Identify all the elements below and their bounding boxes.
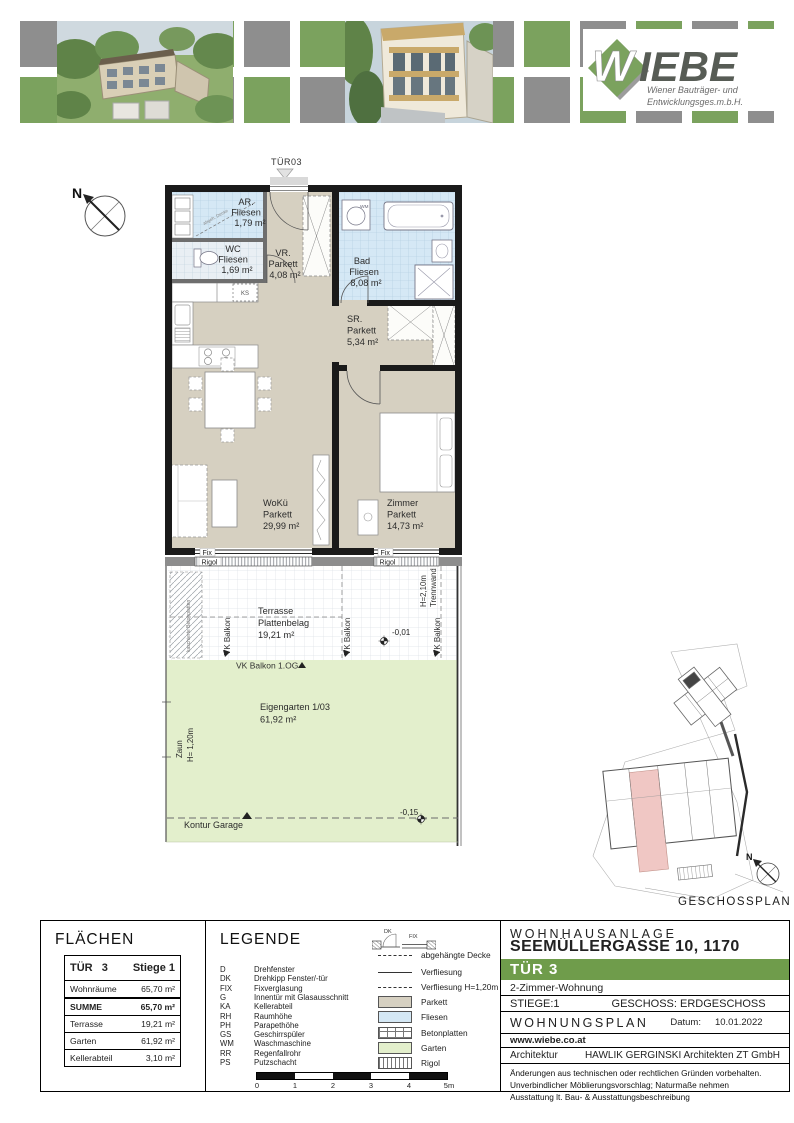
apartment-type: 2-Zimmer-Wohnung [501,980,789,996]
svg-text:VR.: VR. [275,248,290,258]
svg-text:5,34 m²: 5,34 m² [347,337,378,347]
coffee-table [212,480,237,527]
flaechen-table: TÜR 3 Stiege 1 Wohnräume 65,70 m² SUMME … [64,955,181,1067]
table-row: Wohnräume 65,70 m² [65,980,180,997]
svg-text:Fliesen: Fliesen [349,267,379,277]
svg-text:Terrasse: Terrasse [258,606,293,616]
geschoss-value: GESCHOSS: ERDGESCHOSS [612,996,766,1011]
project-address: SEEMÜLLERGASSE 10, 1170 Wien [501,938,789,957]
svg-text:VK Balkon: VK Balkon [433,618,442,655]
stiege-value: STIEGE:1 [510,996,560,1011]
svg-text:14,73 m²: 14,73 m² [387,521,423,531]
legend-abbr-row: PHParapethöhe [220,1021,299,1030]
svg-text:Parkett: Parkett [263,510,293,520]
unit-banner: TÜR 3 [501,959,789,980]
row-label: Wohnräume [70,984,117,994]
siteplan: N GESCHOSSPLAN [593,644,791,908]
flaechen-unit: TÜR 3 [70,962,108,974]
legend-surface-row: Parkett [378,996,447,1008]
row-value: 65,70 m² [141,984,175,994]
table-row-summe: SUMME 65,70 m² [65,997,180,1015]
flaechen-stiege: Stiege 1 [133,962,175,974]
north-compass: N [72,185,125,236]
rendering-aerial-image [57,21,233,123]
legend-surface-row: Garten [378,1042,446,1054]
scale-tick: 5m [444,1081,454,1090]
scale-tick: 2 [331,1081,335,1090]
svg-text:8,08 m²: 8,08 m² [350,278,381,288]
entry-door-label: TÜR03 [270,157,308,185]
legend-abbr-row: DKDrehkipp Fenster/-tür [220,974,328,983]
siteplan-upper-building [664,655,747,738]
compass-n-label: N [72,185,82,201]
row-value: 19,21 m² [141,1019,175,1029]
terrace [168,566,458,660]
svg-text:SR.: SR. [347,314,362,324]
fridge-label: KS [241,291,249,297]
row-value: 61,92 m² [141,1036,175,1046]
row-label: SUMME [70,1002,102,1012]
date-label: Datum: [670,1012,701,1034]
svg-text:Parkett: Parkett [347,326,377,336]
legend-abbr-row: FIXFixverglasung [220,984,303,993]
legend-abbr-row: PSPutzschacht [220,1058,296,1067]
floor-plan: N TÜR03 [0,140,794,920]
logo-tagline-1: Wiener Bauträger- und [647,85,739,95]
legend-line-row: Verfliesung H=1,20m [378,982,498,992]
row-label: Garten [70,1036,96,1046]
title-block: WOHNHAUSANLAGE SEEMÜLLERGASSE 10, 1170 W… [500,920,790,1092]
svg-text:Plattenbelag: Plattenbelag [258,618,309,628]
svg-text:Parkett: Parkett [268,259,298,269]
logo-tagline-2: Entwicklungsges.m.b.H. [647,97,743,107]
nightstand [358,500,378,535]
svg-text:Rigol: Rigol [380,559,396,566]
flaechen-title: FLÄCHEN [55,931,205,949]
svg-text:Fliesen: Fliesen [218,255,248,265]
legend-abbr-row: KAKellerabteil [220,1002,293,1011]
vk-balkon-og-label: VK Balkon 1.OG [236,661,298,671]
scale-tick: 3 [369,1081,373,1090]
plan-type-row: WOHNUNGSPLAN Datum: 10.01.2022 [501,1012,789,1034]
svg-text:4,08 m²: 4,08 m² [269,270,300,280]
kontur-garage-label: Kontur Garage [184,820,243,830]
svg-text:Eigengarten 1/03: Eigengarten 1/03 [260,702,330,712]
legend-line-row: abgehängte Decke [378,950,491,960]
note-line: Unverbindlicher Möblierungsvorschlag; Na… [510,1080,780,1092]
legend-surface-row: Rigol [378,1057,440,1069]
stiege-geschoss-row: STIEGE:1 GESCHOSS: ERDGESCHOSS [501,996,789,1012]
svg-text:29,99 m²: 29,99 m² [263,521,299,531]
radiator [313,455,329,545]
legend-abbr-row: DDrehfenster [220,965,295,974]
svg-text:Zaun: Zaun [175,740,184,758]
svg-text:-0,01: -0,01 [392,628,411,637]
legend-surface-row: Fliesen [378,1011,448,1023]
betonplatten-strip-label: kaschierte Betonplatten [186,600,192,652]
logo-rest: IEBE [639,43,739,90]
architect-name: HAWLIK GERGINSKI Architekten ZT GmbH [585,1048,780,1063]
siteplan-main-building [603,758,740,887]
svg-text:Fliesen: Fliesen [231,208,261,218]
svg-text:Fix: Fix [381,550,391,557]
legend-panel: LEGENDE DDrehfenster DKDrehkipp Fenster/… [205,920,501,1092]
siteplan-compass-n: N [746,852,753,862]
geschossplan-label: GESCHOSSPLAN [678,896,791,908]
svg-text:Trennwand: Trennwand [429,568,438,607]
bed [380,413,455,492]
svg-text:Rigol: Rigol [202,559,218,566]
svg-text:WoKü: WoKü [263,498,288,508]
sink-icon [432,240,452,262]
row-value: 65,70 m² [141,1002,175,1012]
website: www.wiebe.co.at [501,1034,789,1048]
disclaimer-notes: Änderungen aus technischen oder rechtlic… [501,1064,789,1103]
plan-type: WOHNUNGSPLAN [510,1012,648,1034]
svg-text:Parkett: Parkett [387,510,417,520]
svg-text:VK Balkon: VK Balkon [343,618,352,655]
svg-text:61,92 m²: 61,92 m² [260,715,296,725]
row-label: Terrasse [70,1019,103,1029]
svg-text:19,21 m²: 19,21 m² [258,630,294,640]
table-row: Garten 61,92 m² [65,1032,180,1049]
table-row: Kellerabteil 3,10 m² [65,1049,180,1066]
scale-tick: 4 [407,1081,411,1090]
svg-text:WC: WC [225,244,241,254]
scale-tick: 0 [255,1081,259,1090]
architecture-label: Architektur [510,1048,558,1063]
note-line: Ausstattung lt. Bau- & Ausstattungsbesch… [510,1092,780,1104]
header-banner: W IEBE Wiener Bauträger- und Entwicklung… [20,21,774,123]
legend-title: LEGENDE [220,931,500,949]
legend-abbr-row: GSGeschirrspüler [220,1030,305,1039]
fix-label: FIX [409,934,418,940]
scale-tick: 1 [293,1081,297,1090]
svg-text:VK Balkon: VK Balkon [223,618,232,655]
svg-text:AR.: AR. [238,197,253,207]
dk-label: DK [384,929,392,935]
scale-bar [256,1072,448,1080]
table-row: Terrasse 19,21 m² [65,1015,180,1032]
svg-text:H= 1,20m: H= 1,20m [186,728,195,762]
legend-abbr-row: WMWaschmaschine [220,1039,311,1048]
row-label: Kellerabteil [70,1053,113,1063]
date-value: 10.01.2022 [715,1012,763,1034]
flaechen-panel: FLÄCHEN TÜR 3 Stiege 1 Wohnräume 65,70 m… [40,920,206,1092]
dishwasher-icon [175,328,190,342]
rendering-facade-image [345,21,493,123]
legend-abbr-row: RHRaumhöhe [220,1012,292,1021]
svg-text:-0,15: -0,15 [400,808,419,817]
logo-w: W [592,42,637,91]
architect-row: Architektur HAWLIK GERGINSKI Architekten… [501,1048,789,1064]
svg-text:Fix: Fix [203,550,213,557]
legend-abbr-row: RRRegenfallrohr [220,1049,301,1058]
row-value: 3,10 m² [146,1053,175,1063]
legend-line-row: Verfliesung [378,967,462,977]
entry-step [270,177,308,185]
svg-text:Bad: Bad [354,256,370,266]
svg-text:1,79 m²: 1,79 m² [234,218,265,228]
project-type: WOHNHAUSANLAGE [501,921,789,938]
tuer03-label: TÜR03 [271,157,302,167]
wiebe-logo: W IEBE Wiener Bauträger- und Entwicklung… [583,29,774,111]
flaechen-table-header: TÜR 3 Stiege 1 [65,956,180,980]
svg-text:1,69 m²: 1,69 m² [221,265,252,275]
wm-label: WM [360,204,369,210]
legend-surface-row: Betonplatten [378,1027,468,1039]
note-line: Änderungen aus technischen oder rechtlic… [510,1068,780,1080]
svg-text:H=2,10m: H=2,10m [419,575,428,607]
legend-abbr-row: GInnentür mit Glasausschnitt [220,993,348,1002]
svg-text:Zimmer: Zimmer [387,498,418,508]
